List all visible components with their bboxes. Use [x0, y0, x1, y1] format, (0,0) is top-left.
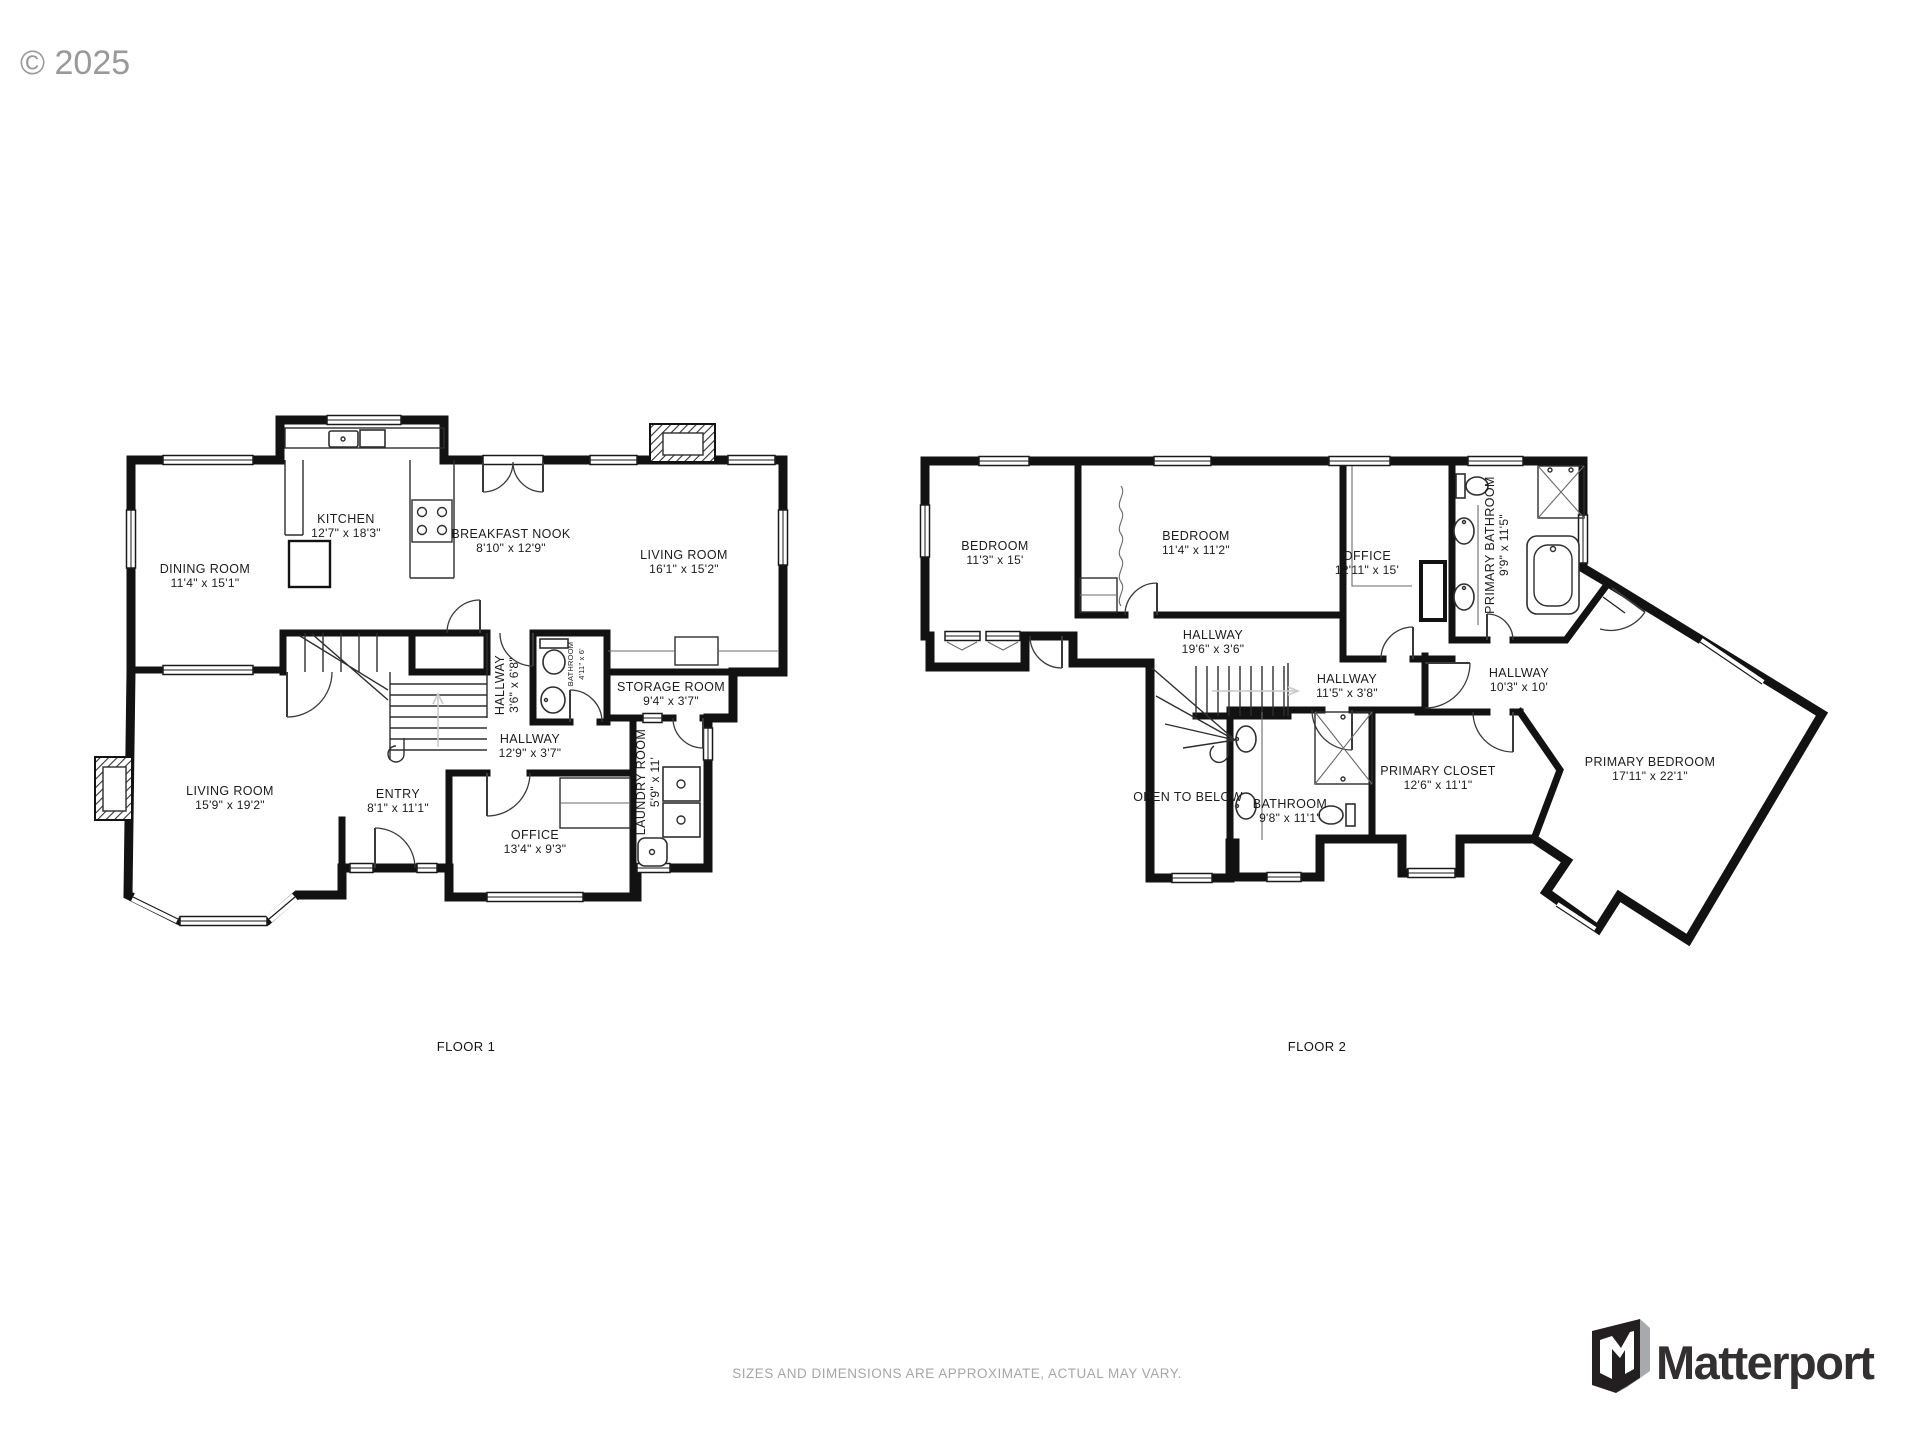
fireplace-left: [95, 757, 132, 820]
room-label-entry: ENTRY: [376, 787, 420, 801]
room-label-kitchen: KITCHEN: [317, 512, 375, 526]
room-dims-dining-room: 11'4" x 15'1": [171, 576, 240, 590]
room-dims-bedroom-1: 11'3" x 15': [966, 553, 1023, 567]
fireplace-top: [650, 424, 715, 462]
primary-bathroom-toilet-tank: [1456, 474, 1465, 498]
room-label-office-1: OFFICE: [511, 828, 559, 842]
room-dims-living-room-2: 15'9" x 19'2": [195, 798, 265, 812]
room-dims-breakfast-nook: 8'10" x 12'9": [476, 541, 546, 555]
primary-bathroom-sink-2: [1454, 584, 1474, 610]
room-label-living-room-2: LIVING ROOM: [186, 784, 274, 798]
room-dims-bedroom-2: 11'4" x 11'2": [1162, 543, 1230, 557]
kitchen-range: [412, 500, 452, 542]
room-dims-hallway-196: 19'6" x 3'6": [1182, 642, 1245, 656]
living-room-builtin: [675, 637, 718, 665]
floor2-plan: BEDROOM 11'3" x 15' BEDROOM 11'4" x 11'2…: [921, 457, 1823, 1055]
room-label-laundry: LAUNDRY ROOM: [634, 729, 648, 835]
room-dims-primary-bedroom: 17'11" x 22'1": [1612, 769, 1688, 783]
room-dims-hallway-115: 11'5" x 3'8": [1316, 686, 1378, 700]
primary-bathroom-sink-1: [1454, 518, 1474, 544]
floor2-outer-walls: [925, 461, 1822, 940]
kitchen-sink: [329, 431, 358, 447]
office2-chase: [1421, 562, 1445, 620]
bedroom1-window-ticks: [947, 642, 1018, 650]
bathroom-toilet: [543, 650, 565, 674]
room-label-open-to-below: OPEN TO BELOW: [1133, 790, 1243, 804]
dryer: [663, 803, 700, 837]
kitchen-cooktop: [360, 430, 385, 447]
room-dims-office-1: 13'4" x 9'3": [504, 842, 567, 856]
floorplan-canvas: © 2025: [0, 0, 1920, 1440]
room-label-bathroom-1: BATHROOM: [566, 642, 575, 686]
room-label-storage-room: STORAGE ROOM: [617, 680, 725, 694]
kitchen-counter-right: [410, 460, 454, 578]
matterport-logo-text: Matterport: [1656, 1336, 1875, 1389]
room-label-hallway-196: HALLWAY: [1183, 628, 1243, 642]
room-label-bedroom-1: BEDROOM: [961, 539, 1028, 553]
room-label-primary-bedroom: PRIMARY BEDROOM: [1585, 755, 1716, 769]
room-label-primary-bathroom: PRIMARY BATHROOM: [1483, 476, 1497, 614]
room-dims-bathroom-1: 4'11" x 6': [577, 648, 586, 680]
matterport-logo: Matterport: [1592, 1319, 1875, 1393]
room-dims-bathroom-2: 9'8" x 11'1": [1259, 811, 1321, 825]
kitchen-counter-left: [285, 460, 303, 535]
room-dims-hallway-main: 12'9" x 3'7": [499, 746, 562, 760]
floor1-label: FLOOR 1: [437, 1039, 495, 1054]
floorplan-page: © 2025: [0, 0, 1920, 1440]
room-label-dining-room: DINING ROOM: [160, 562, 251, 576]
room-label-hallway-small: HALLWAY: [493, 655, 507, 715]
bathroom2-shower: [1315, 712, 1372, 784]
room-label-hallway-115: HALLWAY: [1317, 672, 1377, 686]
room-dims-hallway-small: 3'6" x 6'8": [507, 657, 521, 713]
stairs2-up-arrow: [1212, 687, 1298, 695]
primary-bathroom-shower: [1538, 466, 1584, 518]
room-label-breakfast-nook: BREAKFAST NOOK: [451, 527, 571, 541]
room-dims-living-room-1: 16'1" x 15'2": [649, 562, 719, 576]
room-label-primary-closet: PRIMARY CLOSET: [1380, 764, 1496, 778]
kitchen-cabinet: [289, 541, 330, 587]
room-dims-hallway-103: 10'3" x 10': [1490, 680, 1548, 694]
primary-bathroom-tub: [1527, 536, 1579, 614]
room-dims-primary-bathroom: 9'9" x 11'5": [1497, 514, 1511, 576]
room-label-hallway-103: HALLWAY: [1489, 666, 1549, 680]
laundry-sink: [638, 838, 667, 866]
copyright-text: © 2025: [20, 44, 130, 82]
room-label-hallway-main: HALLWAY: [500, 732, 560, 746]
room-label-bathroom-2: BATHROOM: [1253, 797, 1328, 811]
room-label-bedroom-2: BEDROOM: [1162, 529, 1229, 543]
matterport-logo-icon: [1592, 1319, 1650, 1393]
disclaimer-text: SIZES AND DIMENSIONS ARE APPROXIMATE, AC…: [732, 1366, 1182, 1381]
bathroom2-toilet-tank: [1346, 804, 1355, 826]
room-dims-laundry: 5'9" x 11': [648, 757, 662, 807]
room-dims-kitchen: 12'7" x 18'3": [311, 526, 381, 540]
washer: [663, 767, 700, 801]
room-dims-office-2: 12'11" x 15': [1335, 563, 1399, 577]
bathroom-toilet-tank: [540, 639, 568, 648]
room-label-living-room-1: LIVING ROOM: [640, 548, 728, 562]
floor1-plan: KITCHEN 12'7" x 18'3" BREAKFAST NOOK 8'1…: [95, 416, 788, 1055]
floor2-label: FLOOR 2: [1288, 1039, 1346, 1054]
room-dims-primary-closet: 12'6" x 11'1": [1404, 778, 1473, 792]
room-label-office-2: OFFICE: [1343, 549, 1391, 563]
room-dims-entry: 8'1" x 11'1": [367, 801, 429, 815]
floor2-interior-walls: [1078, 461, 1606, 843]
room-dims-storage-room: 9'4" x 3'7": [643, 694, 699, 708]
floor1-stairs: [300, 633, 487, 762]
bedroom2-closet-curtain: [1119, 486, 1122, 606]
